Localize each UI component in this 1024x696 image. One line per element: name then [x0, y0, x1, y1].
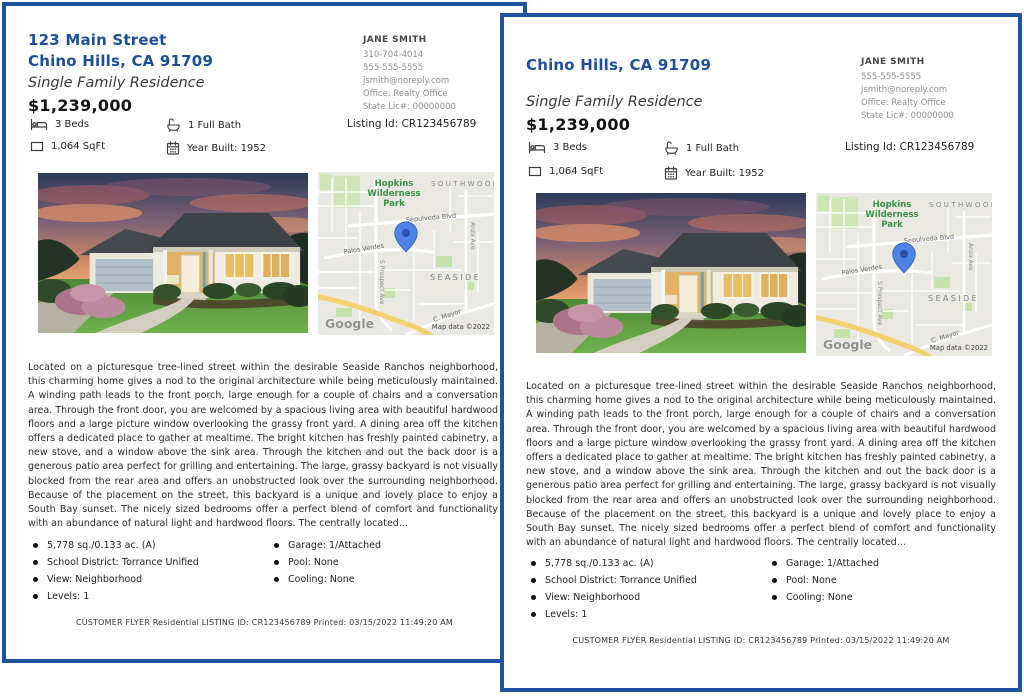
bath-feature: 1 Full Bath — [166, 118, 241, 132]
list-item: Garage: 1/Attached — [771, 558, 879, 575]
sqft-feature: 1,064 SqFt — [528, 166, 603, 177]
map-district-southwood: SOUTHWOOD — [929, 201, 992, 209]
house-photo — [38, 173, 308, 333]
flyer-page-1: 123 Main Street Chino Hills, CA 91709 Si… — [2, 2, 527, 663]
bath-label: 1 Full Bath — [188, 120, 241, 131]
agent-email: jsmith@noreply.com — [861, 84, 1011, 97]
list-item: Levels: 1 — [530, 609, 697, 626]
area-icon — [528, 166, 542, 177]
agent-info: JANE SMITH 555-555-5555 jsmith@noreply.c… — [861, 57, 1011, 123]
map-street-anza: Anza Ave — [967, 243, 974, 271]
list-item: Pool: None — [273, 557, 381, 574]
bath-icon — [166, 118, 181, 132]
map-park-label: Hopkins — [375, 179, 414, 189]
bed-icon — [528, 141, 546, 154]
sqft-label: 1,064 SqFt — [51, 141, 105, 152]
price: $1,239,000 — [28, 96, 213, 115]
beds-label: 3 Beds — [553, 142, 587, 153]
property-description: Located on a picturesque tree-lined stre… — [28, 361, 498, 531]
year-built-label: Year Built: 1952 — [685, 168, 764, 179]
header-spacer — [526, 76, 711, 91]
list-item: School District: Torrance Unified — [32, 557, 199, 574]
map-street-anza: Anza Ave — [469, 222, 476, 250]
property-type: Single Family Residence — [28, 74, 213, 93]
agent-name: JANE SMITH — [363, 35, 513, 45]
bed-icon — [30, 118, 48, 131]
property-header: Chino Hills, CA 91709 Single Family Resi… — [526, 55, 711, 134]
map-attribution: Map data ©2022 — [930, 344, 988, 352]
agent-email: jsmith@noreply.com — [363, 75, 513, 88]
details-list-left: 5,778 sq./0.133 ac. (A) School District:… — [32, 540, 199, 608]
street-address: 123 Main Street — [28, 30, 213, 51]
bath-label: 1 Full Bath — [686, 143, 739, 154]
city-state-zip: Chino Hills, CA 91709 — [526, 55, 711, 76]
agent-phone-2: 555-555-5555 — [363, 62, 513, 75]
flyer-footer: CUSTOMER FLYER Residential LISTING ID: C… — [6, 618, 523, 627]
details-list-right: Garage: 1/Attached Pool: None Cooling: N… — [273, 540, 381, 591]
svg-text:Wilderness: Wilderness — [865, 210, 918, 220]
agent-license: State Lic#: 00000000 — [861, 110, 1011, 123]
list-item: 5,778 sq./0.133 ac. (A) — [530, 558, 697, 575]
list-item: 5,778 sq./0.133 ac. (A) — [32, 540, 199, 557]
area-icon — [30, 141, 44, 152]
svg-text:Park: Park — [881, 220, 903, 230]
agent-name: JANE SMITH — [861, 57, 1011, 67]
list-item: Cooling: None — [771, 592, 879, 609]
calendar-icon — [664, 166, 678, 180]
map-street-prospect: S Prospect Ave — [876, 281, 883, 326]
sqft-feature: 1,064 SqFt — [30, 141, 105, 152]
location-map: Hopkins Wilderness Park SOUTHWOOD Sepulv… — [816, 193, 992, 356]
list-item: View: Neighborhood — [530, 592, 697, 609]
agent-info: JANE SMITH 310-704-4014 555-555-5555 jsm… — [363, 35, 513, 114]
property-type: Single Family Residence — [526, 93, 711, 112]
map-district-seaside: SEASIDE — [928, 294, 979, 303]
list-item: School District: Torrance Unified — [530, 575, 697, 592]
list-item: View: Neighborhood — [32, 574, 199, 591]
property-header: 123 Main Street Chino Hills, CA 91709 Si… — [28, 30, 213, 115]
agent-office: Office: Realty Office — [861, 97, 1011, 110]
svg-text:Park: Park — [383, 199, 405, 209]
list-item: Levels: 1 — [32, 591, 199, 608]
details-list-left: 5,778 sq./0.133 ac. (A) School District:… — [530, 558, 697, 626]
map-district-southwood: SOUTHWOOD — [431, 180, 494, 188]
agent-office: Office: Realty Office — [363, 88, 513, 101]
price: $1,239,000 — [526, 115, 711, 134]
map-attribution: Map data ©2022 — [432, 323, 490, 331]
agent-phone: 310-704-4014 — [363, 49, 513, 62]
list-item: Cooling: None — [273, 574, 381, 591]
house-photo — [536, 193, 806, 353]
flyer-page-2: Chino Hills, CA 91709 Single Family Resi… — [500, 13, 1022, 692]
listing-id: Listing Id: CR123456789 — [347, 118, 476, 130]
map-district-seaside: SEASIDE — [430, 273, 481, 282]
city-state-zip: Chino Hills, CA 91709 — [28, 51, 213, 72]
listing-id: Listing Id: CR123456789 — [845, 141, 974, 153]
agent-phone: 555-555-5555 — [861, 71, 1011, 84]
map-park-label: Hopkins — [873, 200, 912, 210]
details-list-right: Garage: 1/Attached Pool: None Cooling: N… — [771, 558, 879, 609]
beds-feature: 3 Beds — [30, 118, 89, 131]
flyer-footer: CUSTOMER FLYER Residential LISTING ID: C… — [504, 636, 1018, 645]
svg-text:Wilderness: Wilderness — [367, 189, 420, 199]
beds-label: 3 Beds — [55, 119, 89, 130]
year-built-label: Year Built: 1952 — [187, 143, 266, 154]
beds-feature: 3 Beds — [528, 141, 587, 154]
sqft-label: 1,064 SqFt — [549, 166, 603, 177]
location-map: Hopkins Wilderness Park SOUTHWOOD Sepulv… — [318, 172, 494, 335]
year-built-feature: Year Built: 1952 — [664, 166, 764, 180]
map-street-prospect: S Prospect Ave — [378, 260, 385, 305]
bath-icon — [664, 141, 679, 155]
year-built-feature: Year Built: 1952 — [166, 141, 266, 155]
list-item: Garage: 1/Attached — [273, 540, 381, 557]
google-logo: Google — [823, 337, 872, 352]
property-description: Located on a picturesque tree-lined stre… — [526, 380, 996, 550]
calendar-icon — [166, 141, 180, 155]
bath-feature: 1 Full Bath — [664, 141, 739, 155]
agent-license: State Lic#: 00000000 — [363, 101, 513, 114]
google-logo: Google — [325, 316, 374, 331]
list-item: Pool: None — [771, 575, 879, 592]
